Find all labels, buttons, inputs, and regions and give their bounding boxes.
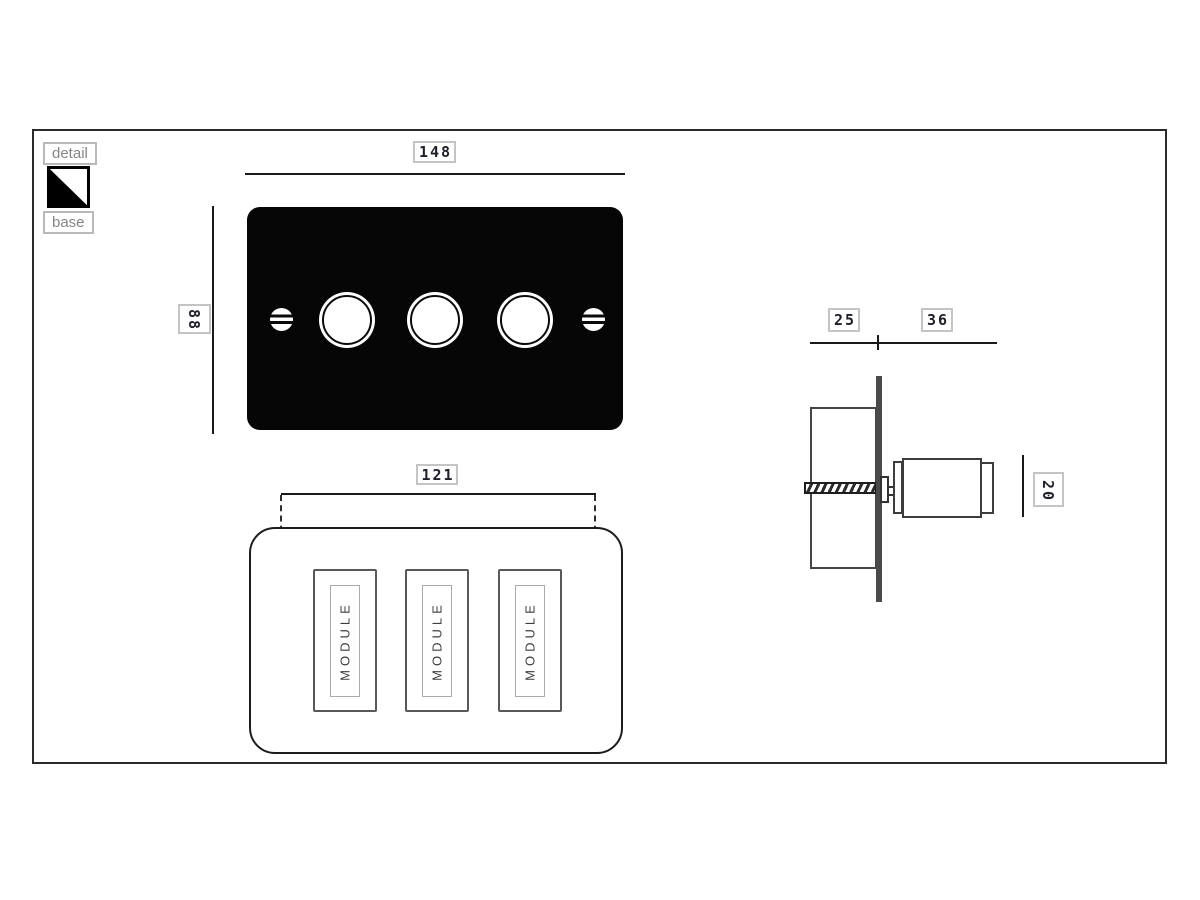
- dimmer-knob-3: [497, 292, 553, 348]
- module-label-plate: MODULE: [515, 585, 545, 697]
- width-dimension-label: 148: [413, 141, 456, 163]
- module-label-text: MODULE: [430, 601, 445, 681]
- knob-ring-icon: [410, 295, 460, 345]
- finish-swatch: [47, 166, 90, 208]
- box-depth-value: 25: [832, 311, 856, 329]
- screw-left-icon: [270, 308, 293, 331]
- dimmer-knob-2: [407, 292, 463, 348]
- knob-body-side: [902, 458, 982, 518]
- depth-dimension-line: [810, 342, 997, 344]
- detail-label-text: detail: [52, 145, 88, 162]
- width-dimension-line: [245, 173, 625, 175]
- module-slot-1: MODULE: [313, 569, 377, 712]
- module-label-text: MODULE: [338, 601, 353, 681]
- depth-dimension-tick: [877, 335, 879, 350]
- screw-right-icon: [582, 308, 605, 331]
- module-label-plate: MODULE: [422, 585, 452, 697]
- base-label: base: [43, 211, 94, 234]
- fixing-centres-value: 121: [419, 466, 454, 484]
- projection-dimension-label: 36: [921, 308, 953, 332]
- dimmer-knob-1: [319, 292, 375, 348]
- knob-ring-icon: [322, 295, 372, 345]
- fixing-centres-dimension-line: [281, 493, 596, 495]
- fixing-centres-dimension-label: 121: [416, 464, 458, 485]
- knob-cap-side: [980, 462, 994, 514]
- width-dimension-value: 148: [417, 143, 452, 161]
- module-label-text: MODULE: [523, 601, 538, 681]
- knob-height-dimension-label: 20: [1033, 472, 1064, 507]
- detail-label: detail: [43, 142, 97, 165]
- base-label-text: base: [52, 214, 85, 231]
- module-slot-3: MODULE: [498, 569, 562, 712]
- projection-value: 36: [925, 311, 949, 329]
- knob-ring-icon: [500, 295, 550, 345]
- fixing-screw-side-icon: [804, 482, 877, 494]
- knob-height-dimension-line: [1022, 455, 1024, 517]
- module-slot-2: MODULE: [405, 569, 469, 712]
- height-dimension-value: 88: [186, 307, 204, 331]
- box-depth-dimension-label: 25: [828, 308, 860, 332]
- knob-height-value: 20: [1040, 477, 1058, 501]
- spec-sheet: detail base 148 88 121 MODULE: [0, 0, 1200, 900]
- faceplate-front-view: [247, 207, 623, 430]
- module-label-plate: MODULE: [330, 585, 360, 697]
- height-dimension-line: [212, 206, 214, 434]
- height-dimension-label: 88: [178, 304, 211, 334]
